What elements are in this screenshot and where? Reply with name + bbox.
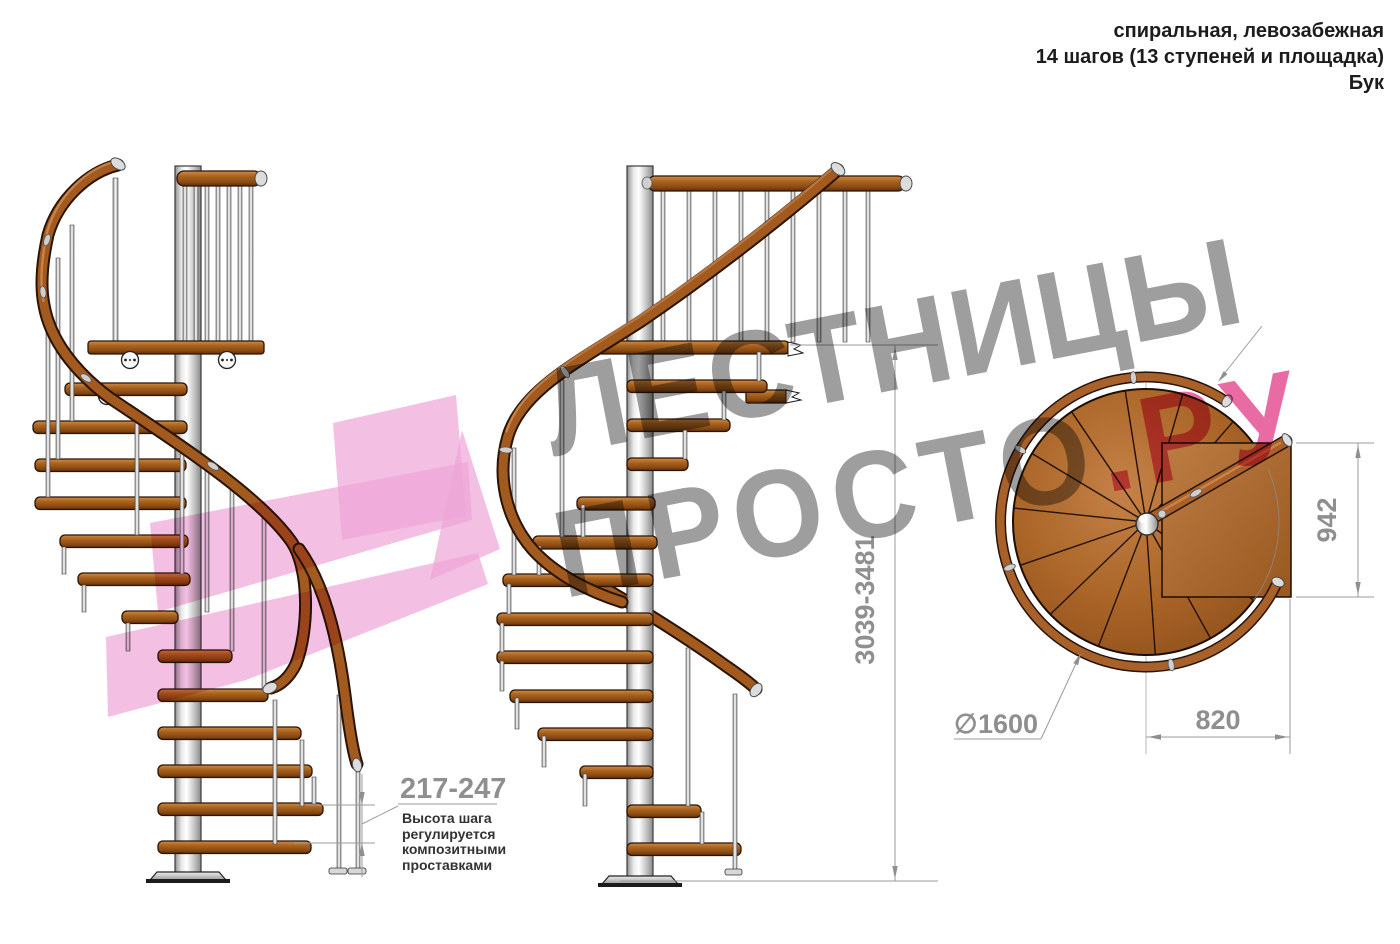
rail-end-cap: [900, 176, 912, 191]
pole-base-plate: [598, 883, 682, 887]
step-height-note: Высота шага регулируется композитными пр…: [402, 811, 506, 873]
pole-base: [150, 872, 226, 880]
title-steps: 14 шагов (13 ступеней и площадка): [1036, 44, 1384, 70]
dim-diameter-symbol: ∅: [954, 709, 978, 739]
title-type: спиральная, левозабежная: [1036, 18, 1384, 44]
drawing-sheet: 3039-3481 942 820 ∅ 1600: [0, 0, 1400, 944]
dim-step-height-label: 217-247: [400, 773, 506, 805]
note-line: регулируется: [402, 827, 506, 843]
watermark-arrow: [106, 395, 500, 717]
top-rail-bar: [648, 176, 905, 191]
note-line: проставками: [402, 858, 506, 874]
title-material: Бук: [1036, 70, 1384, 96]
dim-platform-width-label: 942: [1312, 497, 1342, 542]
pole-base-plate: [146, 879, 230, 883]
rail-end-cap: [255, 171, 267, 186]
platform-board: [88, 341, 264, 354]
title-block: спиральная, левозабежная 14 шагов (13 ст…: [1036, 18, 1384, 96]
dim-platform-depth-label: 820: [1195, 705, 1240, 735]
dim-diameter: ∅ 1600: [954, 653, 1081, 739]
top-rail-bar: [177, 171, 261, 186]
pole-base: [602, 876, 678, 884]
dim-diameter-label: 1600: [978, 709, 1038, 739]
note-line: Высота шага: [402, 811, 506, 827]
note-line: композитными: [402, 842, 506, 858]
